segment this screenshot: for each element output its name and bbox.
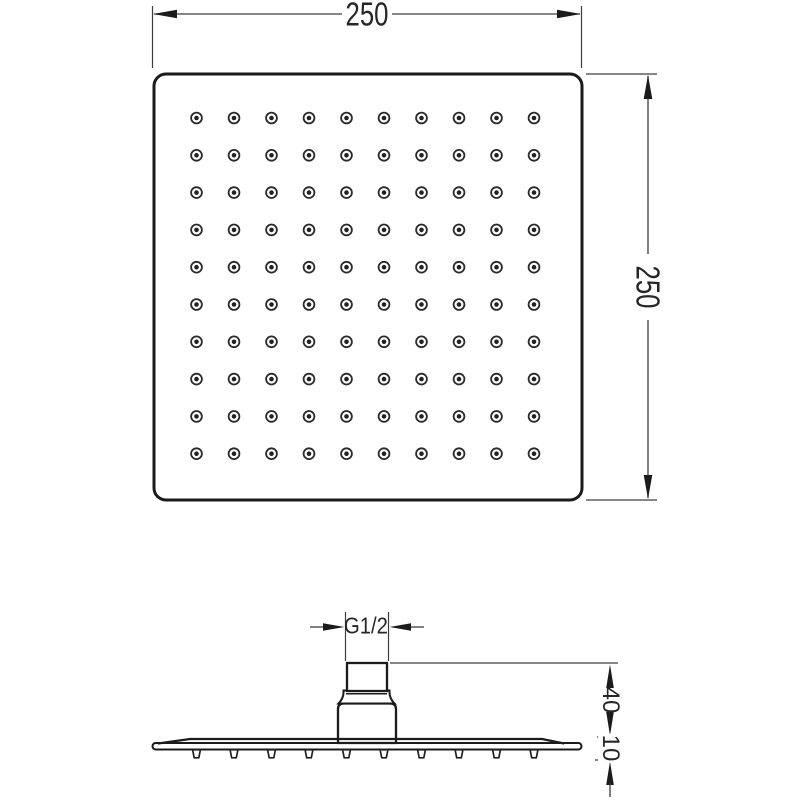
side-nozzle [343,750,351,758]
nozzle-hole-center [344,340,349,345]
plate-thickness-label: 10 [598,734,622,763]
side-nozzle [193,750,201,758]
nozzle-hole-center [232,116,237,121]
nozzle-hole-center [494,190,499,195]
nozzle-hole-center [382,153,387,158]
top-view [154,74,582,500]
technical-drawing: 250 250 G1/2 40 10 [0,0,800,800]
nozzle-hole-center [532,190,537,195]
nozzle-hole-center [269,414,274,419]
nozzle-hole-center [419,116,424,121]
nozzle-hole-center [269,265,274,270]
nozzle-hole-center [532,265,537,270]
nozzle-hole-center [269,340,274,345]
nozzle-hole-center [232,228,237,233]
nozzle-hole-center [494,116,499,121]
nozzle-hole-center [307,302,312,307]
side-nozzle [268,750,276,758]
nozzle-hole-center [419,377,424,382]
nozzle-hole-center [382,377,387,382]
nozzle-hole-center [532,116,537,121]
nozzle-hole-center [194,451,199,456]
nozzle-hole-center [232,414,237,419]
nozzle-hole-center [532,153,537,158]
side-nozzle [230,750,238,758]
drawing-linework [0,0,800,800]
arrow-up-icon [606,762,614,786]
arrow-right-icon [323,623,345,631]
nozzle-hole-center [344,265,349,270]
nozzle-hole-center [194,414,199,419]
arrow-up-icon [644,75,653,99]
side-nozzle [530,750,538,758]
connector-height-label: 40 [598,687,622,714]
nozzle-hole-center [194,190,199,195]
nozzle-hole-center [232,451,237,456]
nozzle-hole-center [494,414,499,419]
nozzle-hole-center [532,340,537,345]
nozzle-hole-center [532,377,537,382]
nozzle-hole-center [457,116,462,121]
thread-dimension-label: G1/2 [344,615,388,638]
nozzle-hole-center [419,451,424,456]
nozzle-hole-center [232,377,237,382]
connector-collar [339,691,395,704]
nozzle-hole-center [457,340,462,345]
nozzle-hole-center [194,265,199,270]
nozzle-hole-center [194,377,199,382]
nozzle-hole-center [232,190,237,195]
nozzle-hole-center [307,377,312,382]
arrow-down-icon [606,712,614,736]
nozzle-hole-center [307,451,312,456]
arrow-left-icon [153,10,177,19]
nozzle-hole-center [494,265,499,270]
arrow-down-icon [644,475,653,499]
nozzle-hole-center [457,302,462,307]
showerhead-faceplate-outline [154,74,582,500]
arrow-up-icon [606,665,614,689]
side-nozzle [418,750,426,758]
nozzle-hole-center [419,414,424,419]
nozzle-hole-center [382,265,387,270]
nozzle-hole-center [269,302,274,307]
nozzle-hole-center [457,451,462,456]
nozzle-hole-center [419,340,424,345]
nozzle-hole-center [194,302,199,307]
nozzle-hole-center [382,228,387,233]
nozzle-hole-center [344,190,349,195]
plate-thickness-dimension [595,760,621,797]
nozzle-hole-center [419,302,424,307]
nozzle-hole-center [307,190,312,195]
arrow-left-icon [390,623,412,631]
nozzle-hole-center [269,190,274,195]
nozzle-hole-center [232,153,237,158]
side-nozzle-row [193,750,538,758]
nozzle-hole-center [269,153,274,158]
nozzle-hole-center [457,377,462,382]
side-nozzle [380,750,388,758]
height-dimension-label: 250 [632,266,665,309]
nozzle-hole-center [269,228,274,233]
nozzle-hole-center [269,377,274,382]
side-nozzle [455,750,463,758]
side-nozzle [493,750,501,758]
nozzle-hole-center [382,116,387,121]
nozzle-hole-center [232,265,237,270]
nozzle-hole-center [419,190,424,195]
nozzle-hole-center [232,340,237,345]
nozzle-hole-center [269,451,274,456]
width-dimension-label: 250 [346,0,389,31]
nozzle-hole-center [344,451,349,456]
nozzle-hole-center [194,340,199,345]
nozzle-hole-center [269,116,274,121]
nozzle-hole-center [457,228,462,233]
nozzle-hole-center [194,153,199,158]
nozzle-hole-center [307,265,312,270]
nozzle-hole-center [344,414,349,419]
nozzle-hole-center [307,228,312,233]
nozzle-hole-center [532,414,537,419]
nozzle-hole-center [382,414,387,419]
nozzle-hole-center [382,340,387,345]
nozzle-hole-center [494,377,499,382]
nozzle-hole-center [457,414,462,419]
nozzle-hole-center [419,228,424,233]
nozzle-hole-center [194,228,199,233]
nozzle-hole-center [532,302,537,307]
nozzle-hole-center [494,153,499,158]
nozzle-hole-center [344,302,349,307]
nozzle-hole-center [382,302,387,307]
nozzle-hole-center [419,153,424,158]
nozzle-hole-center [457,265,462,270]
nozzle-hole-center [457,153,462,158]
nozzle-hole-center [344,228,349,233]
side-nozzle [305,750,313,758]
nozzle-hole-center [532,228,537,233]
nozzle-hole-center [307,340,312,345]
thread-pipe [347,663,387,691]
nozzle-hole-center [307,116,312,121]
nozzle-hole-center [494,451,499,456]
nozzle-hole-center [344,116,349,121]
nozzle-hole-center [307,153,312,158]
nozzle-hole-center [494,340,499,345]
side-view [153,663,582,758]
connector-height-dimension [390,663,621,737]
arrow-right-icon [557,10,581,19]
connector-base [338,704,396,744]
nozzle-hole-center [457,190,462,195]
nozzle-hole-center [532,451,537,456]
nozzle-hole-center [382,451,387,456]
nozzle-hole-center [232,302,237,307]
nozzle-hole-center [344,377,349,382]
nozzle-hole-center [344,153,349,158]
nozzle-hole-center [382,190,387,195]
nozzle-hole-center [307,414,312,419]
nozzle-hole-center [494,228,499,233]
nozzle-hole-center [419,265,424,270]
nozzle-hole-center [494,302,499,307]
nozzle-hole-center [194,116,199,121]
